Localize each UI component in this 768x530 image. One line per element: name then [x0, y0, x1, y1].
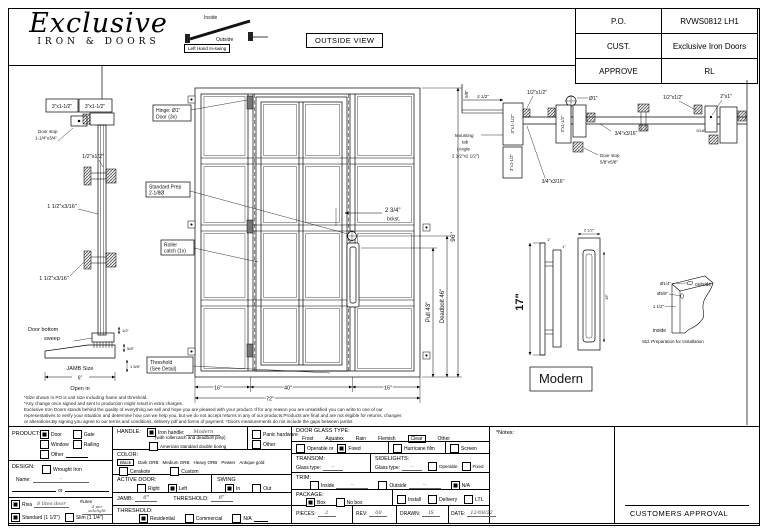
cust-label: CUST.	[576, 34, 662, 59]
transom-glass-value[interactable]: --	[323, 464, 343, 471]
handle-dim-212: 2 1/2"	[584, 228, 595, 233]
checkbox-delivery[interactable]	[428, 495, 437, 504]
sidelights-glass-label: Glass type:	[375, 465, 400, 471]
checkbox-ltl[interactable]	[464, 495, 473, 504]
hinge-callout-line1: Hinge: Ø1"	[156, 108, 181, 114]
model-section: Riva 8 lites door #Lites 4 per sidelight…	[8, 498, 113, 523]
head-tab-dim-a: 3/4"x3/16"	[542, 179, 565, 185]
color-dark-orb[interactable]: Dark ORB	[138, 460, 159, 465]
trim-outside-value[interactable]: --	[409, 482, 441, 489]
deadbolt-height-dim: Deadbolt 46"	[440, 289, 446, 324]
table-row: P.O. RVWS0812 LH1	[576, 9, 758, 34]
head-doorstop-line2: 5/8"x5/8"	[600, 160, 618, 165]
head-frame-b: 3"x1-1/2"	[509, 154, 514, 171]
option-delivery: Delivery	[439, 497, 457, 503]
head-dim-half-b: 1/2"x1/2"	[663, 95, 683, 101]
option-handle-other: Other	[263, 442, 276, 448]
po-value: RVWS0812 LH1	[662, 9, 758, 34]
checkbox-gate[interactable]	[73, 430, 82, 439]
handle-detail-view: 17" 1" 1" 2 1/2" 16" Modern	[514, 228, 609, 392]
head-tab-dim-b: 3/4"x3/16"	[615, 131, 638, 137]
head-dim-212: 2 1/2"	[477, 94, 489, 99]
checkbox-trim-outside[interactable]	[378, 481, 387, 490]
threshold-type-section: THRESHOLD: Residential Commercial N/A	[113, 506, 292, 523]
prep-callout-line2: 2-1/8Ø	[149, 191, 164, 197]
roller-callout: Roller catch (1x)	[161, 240, 258, 262]
glass-type-section: DOOR GLASS TYPE: Frost Aquatex Rain Flem…	[292, 427, 490, 442]
threshold-na-blank[interactable]	[254, 515, 268, 522]
jamb-mid-dim-1: 1 1/2"x3/16"	[47, 204, 77, 210]
unit-height-dim: 96"	[450, 232, 457, 242]
jamb-doorstop-label-1: Door stop	[38, 129, 58, 134]
sidelights-glass-value[interactable]: --	[402, 464, 422, 471]
transom-glass-label: Glass type:	[296, 465, 321, 471]
option-hurricane: Hurricane film	[404, 446, 435, 452]
option-swing-in: In	[236, 486, 240, 492]
mounting-tab-line3: (Angle	[457, 147, 471, 152]
head-doorstop-line1: Door stop	[600, 153, 620, 158]
checkbox-active-right[interactable]	[137, 484, 146, 493]
color-medium-orb[interactable]: Medium ORB	[163, 460, 190, 465]
active-door-label: ACTIVE DOOR:	[117, 477, 156, 483]
option-commercial: Commercial	[196, 516, 223, 522]
head-dim-516: 5/16"	[696, 128, 706, 133]
design-name-label: Name:	[16, 477, 31, 483]
corner-dim-112: 1 1/2"	[653, 304, 665, 309]
color-heavy-orb[interactable]: Heavy ORB	[194, 460, 218, 465]
sidelights-label: SIDELIGHTS:	[375, 456, 409, 462]
active-swing-section: ACTIVE DOOR: Right Left SWING In Out	[113, 475, 292, 493]
mounting-tab-line2: tab	[462, 140, 469, 145]
corner-prep-detail: Ø1/4" Ø5/8" 1 1/2" outside inside Std. P…	[642, 276, 713, 344]
jamb-size-label: JAMB Size	[67, 366, 94, 372]
option-box: Box	[317, 500, 326, 506]
option-railing: Railing	[84, 442, 99, 448]
checkbox-riva[interactable]	[11, 500, 20, 509]
option-trim-inside: Inside	[321, 483, 334, 489]
handle-section: HANDLE: Iron handle: Modern (with roller…	[113, 427, 292, 450]
corner-caption: Std. Preparation for Installation	[642, 339, 704, 344]
option-install: Install	[408, 497, 421, 503]
notes-label: *Notes:	[496, 430, 514, 436]
corner-inside-label: inside	[653, 328, 666, 334]
company-logo: Exclusive IRON & DOORS	[16, 8, 181, 47]
head-frame-a: 3"x1-1/2"	[510, 114, 516, 134]
checkbox-product-other[interactable]	[40, 450, 49, 459]
door-elevation-view: Hinge: Ø1" Door (3x) Standard Prep 2-1/8…	[146, 88, 462, 403]
option-window: Window	[51, 442, 69, 448]
swing-diagram: Inside Outside Left Hand In-swing	[176, 10, 276, 62]
checkbox-screen[interactable]	[450, 444, 459, 453]
checkbox-handle-other[interactable]	[252, 440, 261, 449]
rev-value[interactable]: 00	[369, 510, 387, 517]
jamb-frame-a-dim: 3"x1-1/2"	[52, 104, 72, 110]
customers-approval-label: CUSTOMERS APPROVAL	[607, 509, 751, 518]
option-cerakote: Cerakote	[130, 469, 150, 475]
table-row: CUST. Exclusive Iron Doors	[576, 34, 758, 59]
option-active-left: Left	[179, 486, 187, 492]
logo-sub-text: IRON & DOORS	[16, 37, 181, 47]
checkbox-install[interactable]	[397, 495, 406, 504]
design-name-value[interactable]: --	[33, 476, 89, 483]
option-american-boring: American standard double boring	[160, 444, 226, 449]
glass-mode-section: Operable or Fixed Hurricane film Screen	[292, 442, 490, 454]
option-sidelight-fixed: Fixed	[473, 464, 484, 469]
glass-type-label: DOOR GLASS TYPE:	[296, 428, 350, 434]
product-section: PRODUCT: Door Gate Window Railing Other	[8, 427, 113, 461]
jamb-section-view: 3"x1-1/2" 3"x1-1/2" Door stop 1-1/4"x3/4…	[28, 65, 141, 392]
backset-dim-suffix: bckst.	[387, 217, 400, 223]
head-dim-half-a: 1/2"x1/2"	[527, 90, 547, 96]
checkbox-sidelight-operable[interactable]	[428, 462, 437, 471]
swing-diagram-art: Inside Outside	[176, 10, 276, 44]
logo-script-text: Exclusive	[16, 8, 181, 39]
checkbox-hurricane[interactable]	[393, 444, 402, 453]
option-trim-outside: Outside	[389, 483, 406, 489]
checkbox-operable[interactable]	[296, 444, 305, 453]
corner-outside-label: outside	[695, 282, 711, 288]
technical-drawing: 3"x1-1/2" 3"x1-1/2" Door stop 1-1/4"x3/4…	[8, 64, 760, 426]
cust-value: Exclusive Iron Doors	[662, 34, 758, 59]
threshold-dim-b: 1 5/8"	[130, 364, 141, 369]
roller-callout-line2: catch (1x)	[164, 249, 186, 255]
handle-dim-1b: 1"	[562, 244, 566, 249]
color-section: COLOR: Black Dark ORB Medium ORB Heavy O…	[113, 450, 292, 475]
option-sidelight-operable: Operable	[439, 464, 458, 469]
sidelight-left-dim: 16"	[214, 386, 222, 392]
checkbox-trim-inside[interactable]	[310, 481, 319, 490]
corner-dia-58: Ø5/8"	[657, 291, 668, 296]
option-standard: Standard (1 1/2")	[22, 515, 60, 521]
corner-dia-quarter: Ø1/4"	[660, 281, 671, 286]
checkbox-slim[interactable]	[65, 513, 74, 522]
design-section: DESIGN: Wrought Iron Name: -- or	[8, 461, 113, 498]
checkbox-railing[interactable]	[73, 440, 82, 449]
head-dim-2x1: 2"x1"	[720, 94, 732, 100]
option-screen: Screen	[461, 446, 477, 452]
pull-height-dim: Pull 43"	[426, 302, 432, 322]
trim-section: TRIM: Inside -- Outside -- N/A	[292, 473, 490, 490]
disclaimer-line: representatives to verify your situation…	[24, 413, 401, 419]
threshold-size-label: THRESHOLD:	[173, 496, 208, 502]
checkbox-window[interactable]	[40, 440, 49, 449]
riva-value[interactable]: 8 lites door	[34, 501, 69, 508]
product-other-blank[interactable]	[66, 451, 88, 458]
handle-height-dim: 17"	[514, 293, 526, 310]
checkbox-sidelight-fixed[interactable]	[462, 462, 471, 471]
drawing-sheet: Exclusive IRON & DOORS Inside Outside Le…	[0, 0, 768, 530]
drawn-value[interactable]: IS	[422, 510, 440, 517]
package-section: PACKAGE: Box No box Install Delivery LTL	[292, 490, 490, 506]
signature-line[interactable]	[625, 505, 749, 506]
handle-model-name: Modern	[539, 371, 583, 386]
jamb-threshold-size-section: JAMB: 6" THRESHOLD: 6"	[113, 493, 292, 506]
jamb-width-dim: 6"	[78, 376, 83, 382]
checkbox-wrought-iron[interactable]	[42, 465, 51, 474]
checkbox-commercial[interactable]	[185, 514, 194, 523]
option-wrought-iron: Wrought Iron	[53, 467, 82, 473]
checkbox-panic[interactable]	[252, 430, 261, 439]
pieces-value[interactable]: 2	[318, 510, 336, 517]
jamb-tab-dim: 1/2"x1/2"	[82, 154, 104, 160]
checkbox-standard[interactable]	[11, 513, 20, 522]
pieces-label: PIECES:	[296, 511, 316, 517]
option-slim: Slim (1 1/4")	[76, 515, 103, 521]
color-pewter[interactable]: Pewter	[221, 460, 235, 465]
notes-section: *Notes:	[490, 427, 615, 523]
head-section-view: 5/8" 2 1/2" 3"x1-1/2" 3"x1-1/2" Mounting…	[452, 84, 747, 185]
sidelight-right-dim: 16"	[384, 386, 392, 392]
outside-view-label: OUTSIDE VIEW	[306, 33, 383, 48]
threshold-dim-a: 5/8"	[127, 346, 135, 351]
option-trim-na: N/A	[462, 483, 470, 489]
mounting-tab-line4: 2 1/2"x2 1/2")	[452, 154, 479, 159]
product-label: PRODUCT:	[12, 431, 40, 437]
checkbox-swing-in[interactable]	[225, 484, 234, 493]
color-antique-gold[interactable]: Antique gold	[239, 460, 264, 465]
option-fixed: Fixed	[348, 446, 360, 452]
handle-dim-16: 16"	[604, 293, 609, 299]
checkbox-door[interactable]	[40, 430, 49, 439]
trim-label: TRIM:	[296, 475, 311, 481]
option-threshold-na: N/A	[243, 516, 251, 522]
option-swing-out: Out	[263, 486, 271, 492]
handle-dim-1a: 1"	[547, 237, 551, 242]
color-label: COLOR:	[117, 452, 138, 458]
checkbox-threshold-na[interactable]	[232, 514, 241, 523]
swing-caption: Left Hand In-swing	[184, 44, 230, 53]
jamb-value[interactable]: 6"	[135, 495, 157, 502]
swing-label: SWING	[217, 477, 236, 483]
option-product-other: Other	[51, 452, 64, 458]
jamb-doorstop-label-2: 1-1/4"x3/4"	[35, 136, 57, 141]
door-width-dim: 40"	[284, 386, 292, 392]
threshold-size-value[interactable]: 6"	[211, 495, 233, 502]
trim-inside-value[interactable]: --	[336, 482, 368, 489]
option-gate: Gate	[84, 432, 95, 438]
option-active-right: Right	[148, 486, 160, 492]
open-in-label: Open in	[70, 386, 89, 392]
option-door: Door	[51, 432, 62, 438]
jamb-label: JAMB:	[117, 496, 133, 502]
option-custom-color: Custom	[181, 469, 198, 475]
sweep-dim: 1/2"	[122, 328, 130, 333]
backset-dim: 2 3/4"	[385, 208, 400, 214]
head-dim-58: 5/8"	[464, 90, 469, 98]
transom-sidelights-section: TRANSOM: Glass type: -- SIDELIGHTS: Glas…	[292, 454, 490, 473]
option-ltl: LTL	[475, 497, 483, 503]
checkbox-trim-na[interactable]	[451, 481, 460, 490]
jamb-frame-b-dim: 3"x1-1/2"	[85, 104, 105, 110]
pull-handle	[347, 243, 359, 307]
checkbox-swing-out[interactable]	[252, 484, 261, 493]
swing-outside-label: Outside	[216, 37, 233, 43]
option-no-box: No box	[347, 500, 363, 506]
rev-label: REV:	[356, 511, 367, 517]
checkbox-fixed[interactable]	[337, 444, 346, 453]
mounting-tab-line1: Mounting	[455, 133, 474, 138]
swing-inside-label: Inside	[204, 15, 218, 21]
hinge-callout-line2: Door (3x)	[156, 115, 177, 121]
disclaimer-line: or alterations.By signing you agree to o…	[24, 419, 401, 425]
sweep-label-2: sweep	[44, 336, 60, 342]
option-operable: Operable or	[307, 446, 333, 452]
drawn-label: DRAWN:	[400, 511, 420, 517]
head-frame-c: 3"x1-1/2"	[560, 115, 565, 132]
color-black[interactable]: Black	[117, 459, 134, 466]
po-label: P.O.	[576, 9, 662, 34]
hinge-callout: Hinge: Ø1" Door (3x)	[153, 100, 247, 121]
iron-handle-note: (with rollercatch and deadbolt prep)	[155, 436, 226, 441]
option-residential: Residential	[150, 516, 175, 522]
riva-label: Riva	[22, 502, 32, 508]
disclaimer-text: *Size shown in PO is unit size including…	[24, 395, 401, 425]
disclaimer-line: Exclusive Iron Doors stands behind the q…	[24, 407, 401, 413]
checkbox-active-left[interactable]	[168, 484, 177, 493]
sweep-label-1: Door bottom	[28, 327, 59, 333]
threshold-callout-line2: (See Detail)	[150, 367, 177, 373]
transom-label: TRANSOM:	[296, 456, 325, 462]
design-or-label: or	[58, 488, 62, 494]
threshold-callout-line1: Threshold	[150, 360, 172, 366]
design-label: DESIGN:	[12, 464, 35, 470]
meta-section: PIECES: 2 REV: 00 DRAWN: IS DATE: 12/08/…	[292, 506, 490, 523]
head-dia-1: Ø1"	[589, 96, 598, 102]
jamb-mid-dim-2: 1 1/2"x3/16"	[39, 276, 69, 282]
handle-label: HANDLE:	[117, 429, 141, 435]
date-label: DATE:	[451, 511, 465, 517]
checkbox-residential[interactable]	[139, 514, 148, 523]
